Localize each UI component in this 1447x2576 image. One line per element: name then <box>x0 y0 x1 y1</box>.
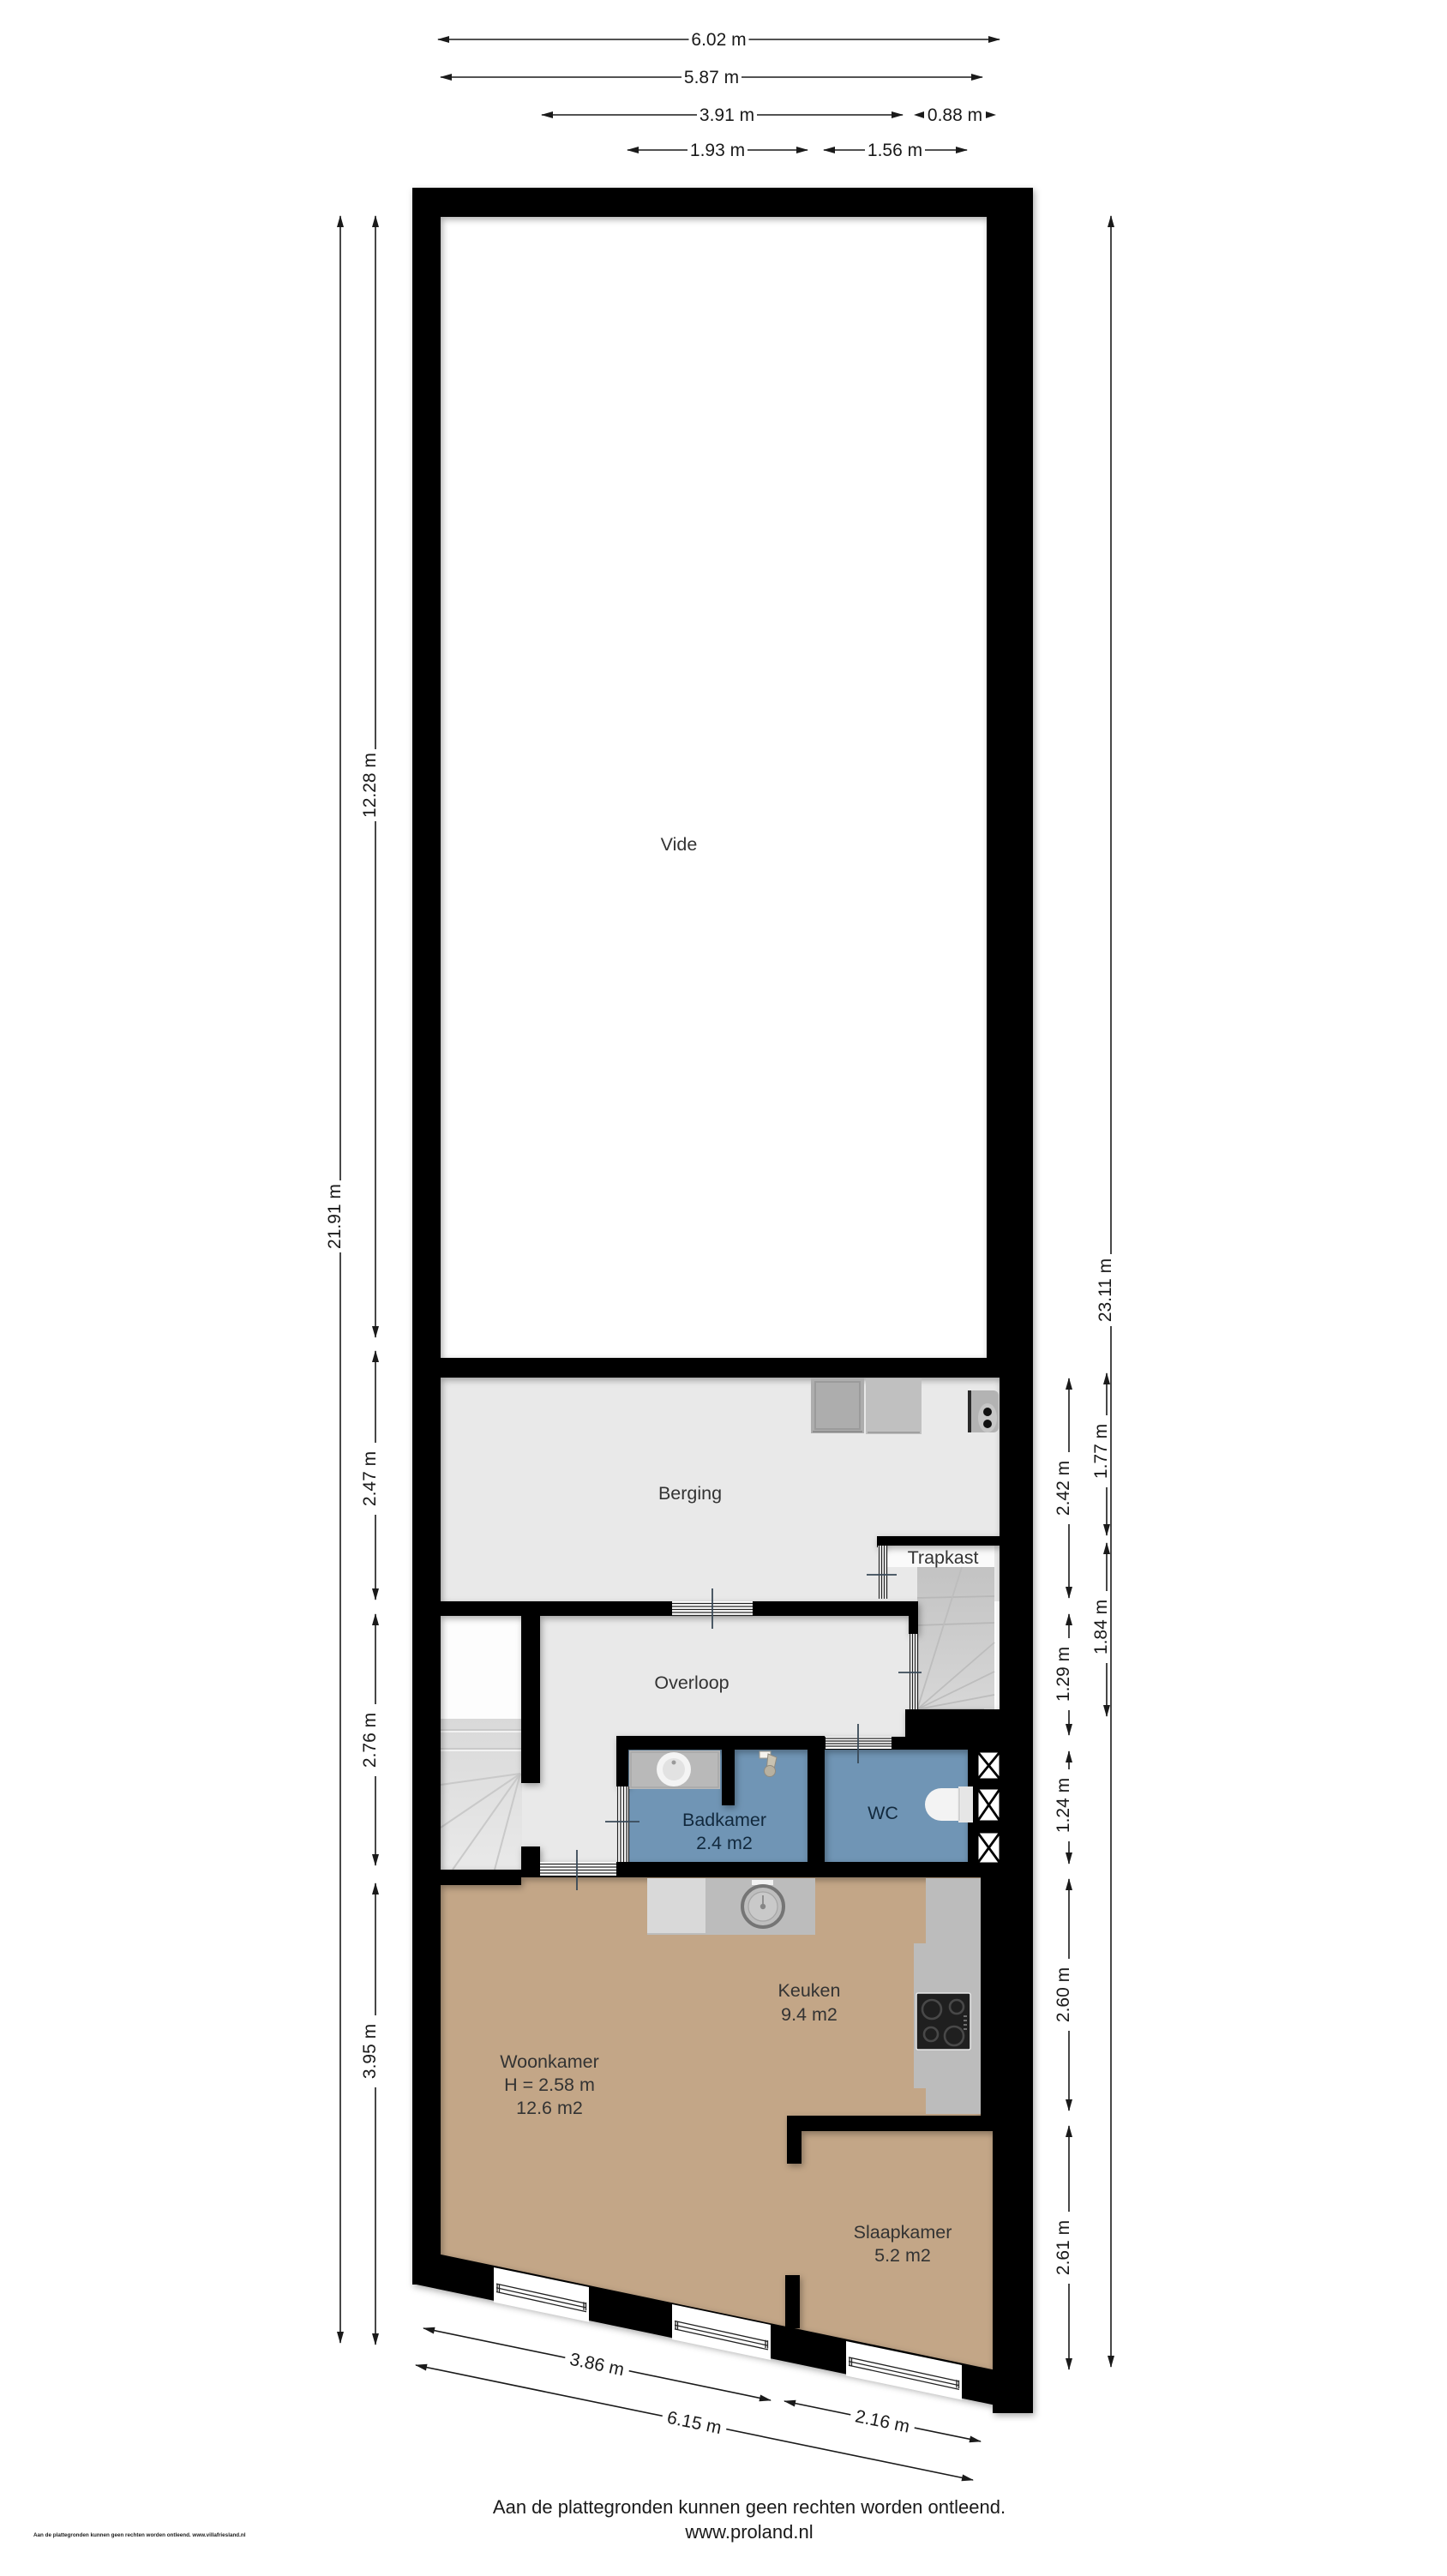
svg-text:1.29 m: 1.29 m <box>1054 1647 1073 1702</box>
svg-text:9.4 m2: 9.4 m2 <box>781 2004 838 2025</box>
svg-text:2.47 m: 2.47 m <box>360 1451 380 1506</box>
svg-text:1.56 m: 1.56 m <box>868 141 922 160</box>
svg-text:23.11 m: 23.11 m <box>1096 1258 1115 1322</box>
svg-text:WC: WC <box>868 1803 898 1823</box>
svg-text:3.91 m: 3.91 m <box>699 105 754 125</box>
svg-text:5.87 m: 5.87 m <box>684 68 739 87</box>
svg-text:12.6 m2: 12.6 m2 <box>516 2098 583 2118</box>
svg-text:1.24 m: 1.24 m <box>1054 1778 1073 1833</box>
svg-text:H = 2.58 m: H = 2.58 m <box>504 2075 595 2095</box>
svg-text:1.77 m: 1.77 m <box>1091 1424 1111 1479</box>
svg-text:0.88 m: 0.88 m <box>928 105 982 125</box>
svg-text:1.93 m: 1.93 m <box>690 141 745 160</box>
svg-text:Overloop: Overloop <box>654 1672 729 1693</box>
svg-text:2.42 m: 2.42 m <box>1054 1461 1073 1516</box>
svg-text:3.95 m: 3.95 m <box>360 2024 380 2079</box>
svg-text:Vide: Vide <box>661 834 698 855</box>
svg-text:Badkamer: Badkamer <box>682 1810 766 1830</box>
svg-text:2.60 m: 2.60 m <box>1054 1967 1073 2022</box>
svg-text:21.91 m: 21.91 m <box>325 1184 345 1249</box>
svg-text:Trapkast: Trapkast <box>908 1547 979 1568</box>
svg-text:2.61 m: 2.61 m <box>1054 2220 1073 2275</box>
svg-text:Slaapkamer: Slaapkamer <box>854 2222 952 2243</box>
svg-text:2.76 m: 2.76 m <box>360 1713 380 1768</box>
svg-text:5.2 m2: 5.2 m2 <box>874 2245 931 2266</box>
svg-text:12.28 m: 12.28 m <box>360 753 380 818</box>
svg-text:2.4 m2: 2.4 m2 <box>696 1833 753 1853</box>
svg-text:Keuken: Keuken <box>778 1980 841 2001</box>
svg-text:Aan de plattegronden kunnen ge: Aan de plattegronden kunnen geen rechten… <box>493 2496 1006 2518</box>
svg-text:www.proland.nl: www.proland.nl <box>684 2521 813 2543</box>
svg-text:Berging: Berging <box>658 1483 722 1504</box>
svg-text:1.84 m: 1.84 m <box>1091 1600 1111 1654</box>
svg-text:Aan de plattegronden kunnen ge: Aan de plattegronden kunnen geen rechten… <box>33 2532 246 2538</box>
svg-text:6.02 m: 6.02 m <box>691 30 746 50</box>
svg-text:Woonkamer: Woonkamer <box>500 2051 599 2072</box>
